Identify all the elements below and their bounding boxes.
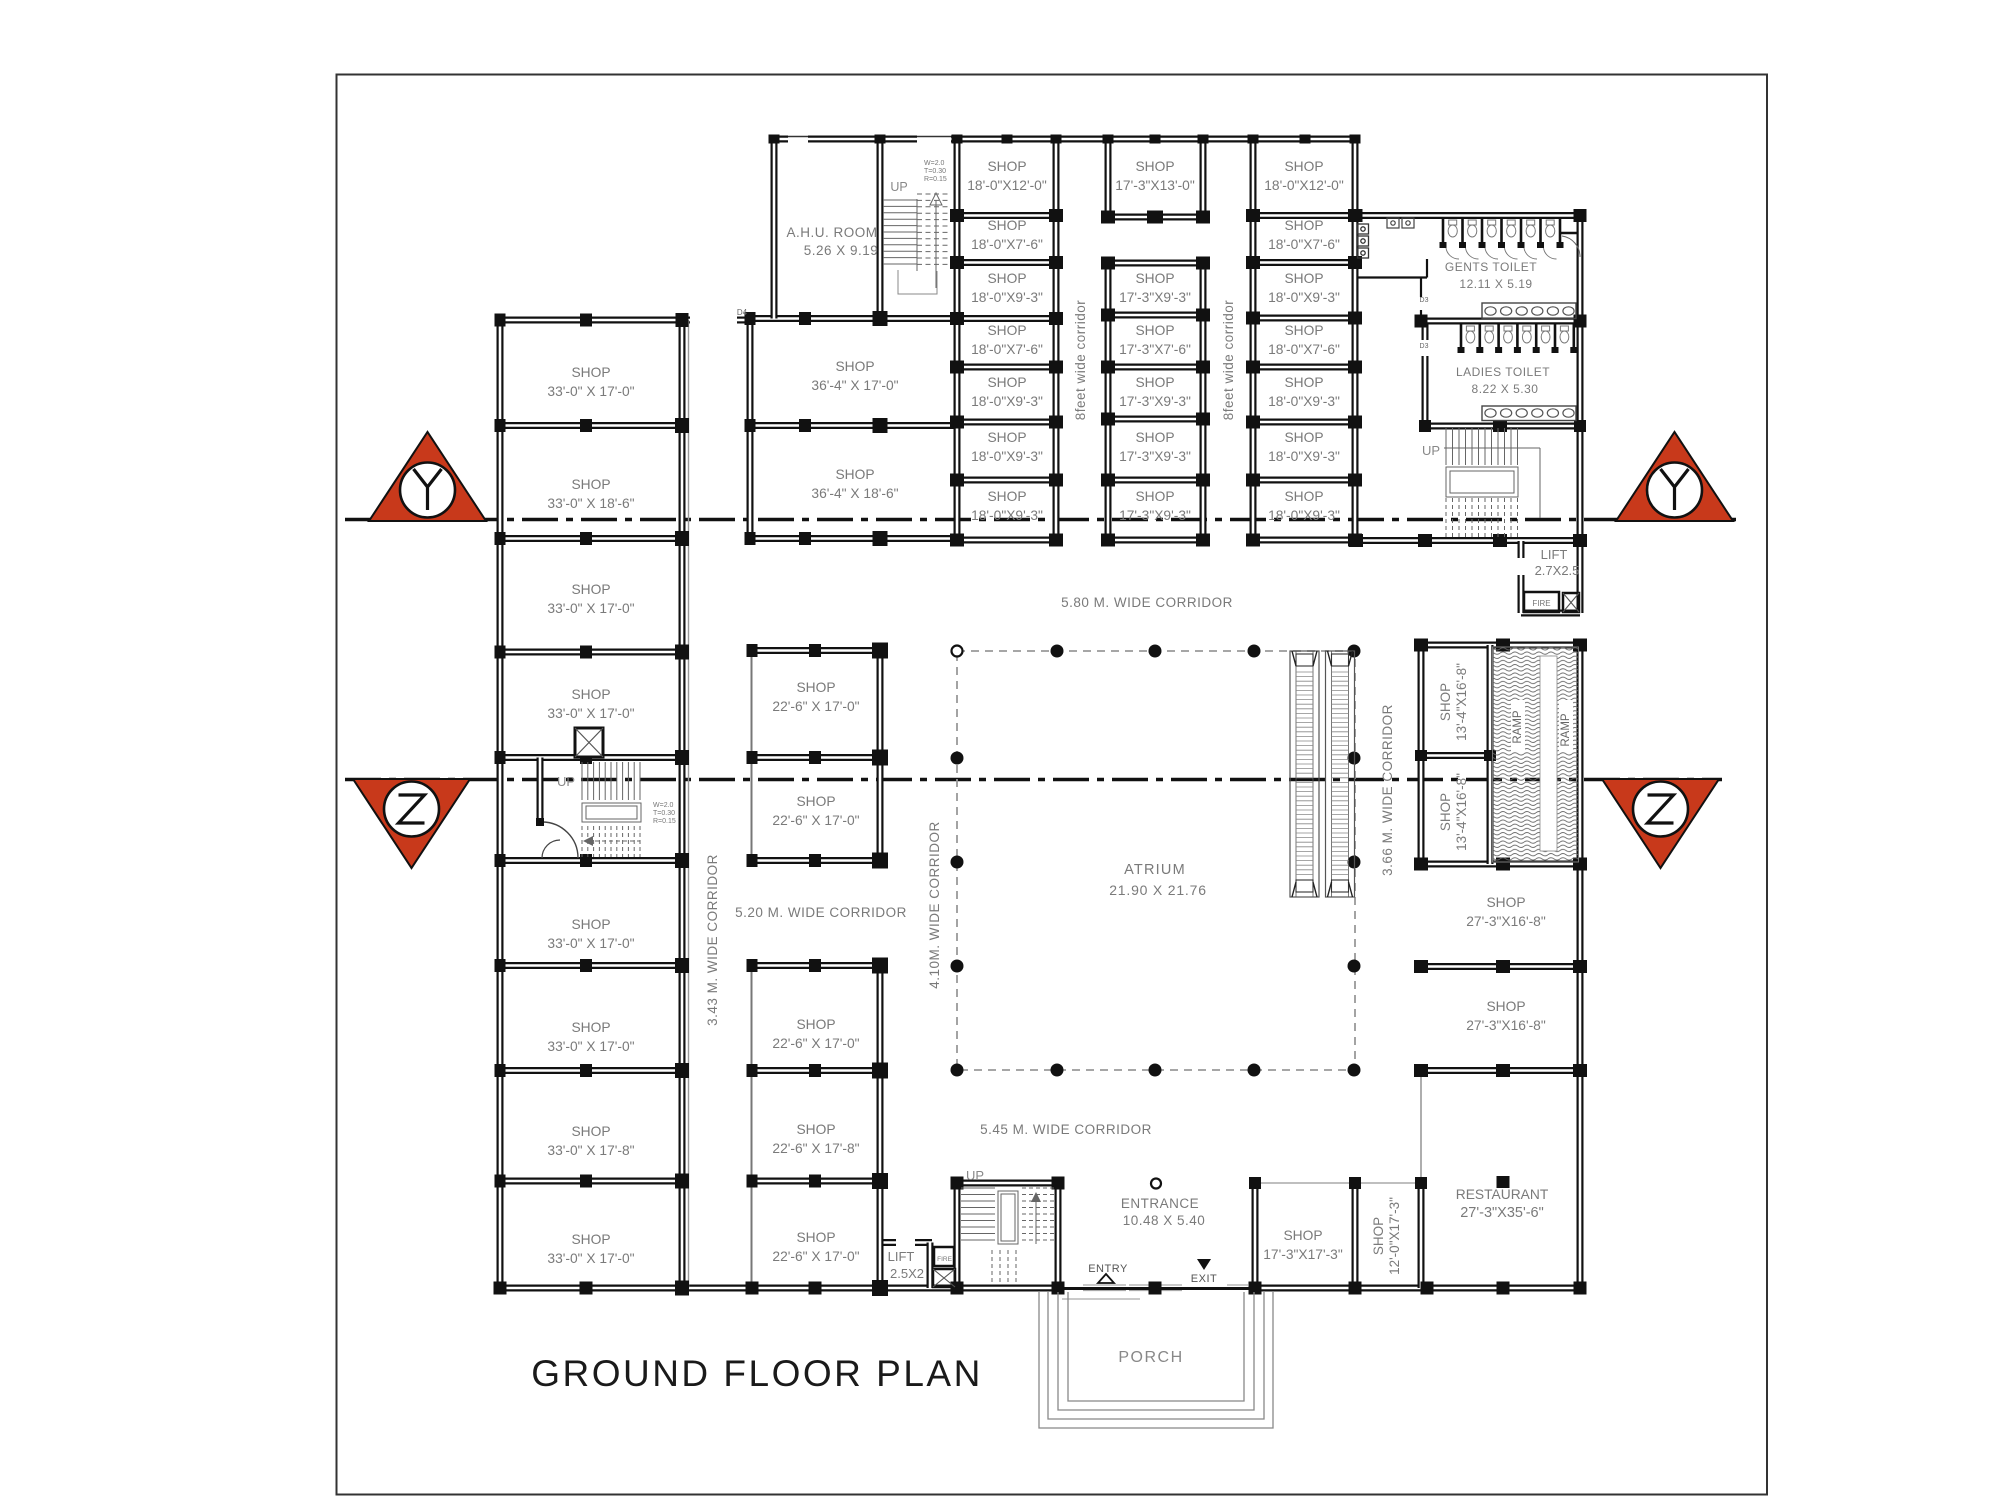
svg-text:SHOP: SHOP bbox=[571, 582, 610, 597]
svg-text:SHOP: SHOP bbox=[571, 1124, 610, 1139]
svg-text:33'-0" X 17'-0": 33'-0" X 17'-0" bbox=[547, 601, 634, 616]
svg-text:SHOP: SHOP bbox=[1283, 1228, 1322, 1243]
svg-text:UP: UP bbox=[557, 774, 575, 789]
svg-text:GROUND FLOOR PLAN: GROUND FLOOR PLAN bbox=[531, 1353, 983, 1394]
svg-text:SHOP: SHOP bbox=[987, 323, 1026, 338]
svg-text:22'-6" X 17'-0": 22'-6" X 17'-0" bbox=[772, 1249, 859, 1264]
svg-text:3.66 M. WIDE CORRIDOR: 3.66 M. WIDE CORRIDOR bbox=[1380, 704, 1395, 876]
svg-text:27'-3"X16'-8": 27'-3"X16'-8" bbox=[1466, 1018, 1546, 1033]
svg-text:RAMP: RAMP bbox=[1512, 710, 1524, 744]
svg-text:SHOP: SHOP bbox=[1371, 1217, 1386, 1255]
svg-text:SHOP: SHOP bbox=[1135, 159, 1174, 174]
svg-text:SHOP: SHOP bbox=[1438, 793, 1453, 831]
svg-text:SHOP: SHOP bbox=[1284, 323, 1323, 338]
svg-text:13'-4"X16'-8": 13'-4"X16'-8" bbox=[1454, 663, 1469, 741]
svg-text:UP: UP bbox=[966, 1168, 984, 1183]
svg-text:SHOP: SHOP bbox=[835, 467, 874, 482]
svg-text:SHOP: SHOP bbox=[987, 159, 1026, 174]
svg-text:SHOP: SHOP bbox=[1284, 489, 1323, 504]
svg-text:17'-3"X7'-6": 17'-3"X7'-6" bbox=[1119, 342, 1191, 357]
svg-text:5.26 X 9.19: 5.26 X 9.19 bbox=[804, 243, 879, 258]
svg-text:36'-4" X 18'-6": 36'-4" X 18'-6" bbox=[811, 486, 898, 501]
svg-text:8.22 X 5.30: 8.22 X 5.30 bbox=[1472, 382, 1539, 396]
svg-text:UP: UP bbox=[890, 180, 907, 194]
svg-text:33'-0" X 17'-0": 33'-0" X 17'-0" bbox=[547, 1251, 634, 1266]
svg-text:10.48 X 5.40: 10.48 X 5.40 bbox=[1123, 1213, 1206, 1228]
svg-text:4.10M. WIDE CORRIDOR: 4.10M. WIDE CORRIDOR bbox=[927, 821, 942, 989]
svg-text:18'-0"X9'-3": 18'-0"X9'-3" bbox=[1268, 449, 1340, 464]
svg-text:W=2.0: W=2.0 bbox=[924, 160, 945, 167]
svg-text:T=0.30: T=0.30 bbox=[653, 810, 675, 817]
svg-text:SHOP: SHOP bbox=[796, 794, 835, 809]
svg-text:33'-0" X 17'-0": 33'-0" X 17'-0" bbox=[547, 384, 634, 399]
svg-text:SHOP: SHOP bbox=[571, 1232, 610, 1247]
svg-text:2.5X2: 2.5X2 bbox=[890, 1266, 924, 1281]
svg-text:GENTS TOILET: GENTS TOILET bbox=[1445, 260, 1537, 274]
svg-text:22'-6" X 17'-8": 22'-6" X 17'-8" bbox=[772, 1141, 859, 1156]
svg-text:18'-0"X9'-3": 18'-0"X9'-3" bbox=[971, 394, 1043, 409]
svg-text:SHOP: SHOP bbox=[987, 271, 1026, 286]
svg-text:SHOP: SHOP bbox=[796, 1122, 835, 1137]
svg-text:W=2.0: W=2.0 bbox=[653, 802, 674, 809]
svg-text:12'-0"X17'-3": 12'-0"X17'-3" bbox=[1387, 1197, 1402, 1275]
svg-text:SHOP: SHOP bbox=[1284, 159, 1323, 174]
svg-text:SHOP: SHOP bbox=[1486, 999, 1525, 1014]
svg-text:SHOP: SHOP bbox=[796, 1230, 835, 1245]
svg-text:T=0.30: T=0.30 bbox=[924, 168, 946, 175]
svg-text:36'-4" X 17'-0": 36'-4" X 17'-0" bbox=[811, 378, 898, 393]
svg-text:SHOP: SHOP bbox=[1284, 430, 1323, 445]
svg-text:SHOP: SHOP bbox=[1135, 271, 1174, 286]
svg-text:EXIT: EXIT bbox=[1191, 1273, 1217, 1285]
svg-text:2.7X2.5: 2.7X2.5 bbox=[1535, 563, 1580, 578]
svg-text:SHOP: SHOP bbox=[571, 687, 610, 702]
svg-text:8feet wide corridor: 8feet wide corridor bbox=[1221, 300, 1236, 421]
svg-text:17'-3"X17'-3": 17'-3"X17'-3" bbox=[1263, 1247, 1343, 1262]
svg-text:18'-0"X9'-3": 18'-0"X9'-3" bbox=[971, 508, 1043, 523]
svg-text:LIFT: LIFT bbox=[1541, 547, 1568, 562]
svg-text:18'-0"X9'-3": 18'-0"X9'-3" bbox=[1268, 290, 1340, 305]
svg-text:8feet wide corridor: 8feet wide corridor bbox=[1073, 300, 1088, 421]
svg-text:13'-4"X16'-8": 13'-4"X16'-8" bbox=[1454, 773, 1469, 851]
svg-text:33'-0" X 17'-8": 33'-0" X 17'-8" bbox=[547, 1143, 634, 1158]
svg-text:SHOP: SHOP bbox=[571, 1020, 610, 1035]
svg-text:18'-0"X9'-3": 18'-0"X9'-3" bbox=[1268, 394, 1340, 409]
svg-text:17'-3"X9'-3": 17'-3"X9'-3" bbox=[1119, 449, 1191, 464]
svg-text:RESTAURANT: RESTAURANT bbox=[1456, 1187, 1549, 1202]
svg-text:22'-6" X 17'-0": 22'-6" X 17'-0" bbox=[772, 813, 859, 828]
svg-text:SHOP: SHOP bbox=[1284, 271, 1323, 286]
svg-text:SHOP: SHOP bbox=[571, 365, 610, 380]
svg-text:ATRIUM: ATRIUM bbox=[1124, 862, 1186, 878]
svg-text:SHOP: SHOP bbox=[1284, 218, 1323, 233]
svg-text:27'-3"X35'-6": 27'-3"X35'-6" bbox=[1460, 1205, 1544, 1221]
svg-text:SHOP: SHOP bbox=[987, 375, 1026, 390]
svg-text:17'-3"X9'-3": 17'-3"X9'-3" bbox=[1119, 290, 1191, 305]
svg-text:SHOP: SHOP bbox=[571, 477, 610, 492]
svg-text:27'-3"X16'-8": 27'-3"X16'-8" bbox=[1466, 914, 1546, 929]
svg-text:18'-0"X7'-6": 18'-0"X7'-6" bbox=[971, 237, 1043, 252]
svg-text:17'-3"X9'-3": 17'-3"X9'-3" bbox=[1119, 394, 1191, 409]
svg-text:12.11 X 5.19: 12.11 X 5.19 bbox=[1459, 277, 1532, 291]
svg-text:18'-0"X12'-0": 18'-0"X12'-0" bbox=[967, 178, 1047, 193]
svg-text:SHOP: SHOP bbox=[796, 680, 835, 695]
svg-text:18'-0"X7'-6": 18'-0"X7'-6" bbox=[1268, 342, 1340, 357]
svg-text:ENTRANCE: ENTRANCE bbox=[1121, 1196, 1199, 1211]
svg-text:SHOP: SHOP bbox=[1284, 375, 1323, 390]
svg-text:SHOP: SHOP bbox=[1438, 683, 1453, 721]
svg-text:5.20 M. WIDE CORRIDOR: 5.20 M. WIDE CORRIDOR bbox=[735, 905, 907, 920]
svg-text:33'-0" X 17'-0": 33'-0" X 17'-0" bbox=[547, 936, 634, 951]
svg-text:D4: D4 bbox=[737, 308, 748, 317]
svg-text:33'-0" X 18'-6": 33'-0" X 18'-6" bbox=[547, 496, 634, 511]
svg-text:R=0.15: R=0.15 bbox=[653, 818, 676, 825]
svg-text:18'-0"X9'-3": 18'-0"X9'-3" bbox=[971, 449, 1043, 464]
svg-text:SHOP: SHOP bbox=[987, 218, 1026, 233]
svg-text:SHOP: SHOP bbox=[1135, 489, 1174, 504]
svg-text:18'-0"X7'-6": 18'-0"X7'-6" bbox=[1268, 237, 1340, 252]
svg-text:33'-0" X 17'-0": 33'-0" X 17'-0" bbox=[547, 706, 634, 721]
svg-text:RAMP: RAMP bbox=[1560, 713, 1572, 747]
svg-text:17'-3"X13'-0": 17'-3"X13'-0" bbox=[1115, 178, 1195, 193]
svg-text:FIRE: FIRE bbox=[1532, 599, 1550, 608]
svg-text:A.H.U. ROOM: A.H.U. ROOM bbox=[786, 225, 877, 240]
svg-text:D3: D3 bbox=[1420, 297, 1429, 304]
svg-text:LADIES TOILET: LADIES TOILET bbox=[1456, 365, 1550, 379]
svg-text:18'-0"X9'-3": 18'-0"X9'-3" bbox=[1268, 508, 1340, 523]
svg-text:18'-0"X12'-0": 18'-0"X12'-0" bbox=[1264, 178, 1344, 193]
svg-text:SHOP: SHOP bbox=[987, 489, 1026, 504]
svg-text:SHOP: SHOP bbox=[1486, 895, 1525, 910]
svg-text:LIFT: LIFT bbox=[888, 1249, 915, 1264]
svg-text:5.45 M. WIDE CORRIDOR: 5.45 M. WIDE CORRIDOR bbox=[980, 1122, 1152, 1137]
svg-text:18'-0"X7'-6": 18'-0"X7'-6" bbox=[971, 342, 1043, 357]
svg-text:33'-0" X 17'-0": 33'-0" X 17'-0" bbox=[547, 1039, 634, 1054]
svg-text:SHOP: SHOP bbox=[835, 359, 874, 374]
svg-text:SHOP: SHOP bbox=[1135, 323, 1174, 338]
svg-text:18'-0"X9'-3": 18'-0"X9'-3" bbox=[971, 290, 1043, 305]
svg-text:R=0.15: R=0.15 bbox=[924, 176, 947, 183]
svg-text:22'-6" X 17'-0": 22'-6" X 17'-0" bbox=[772, 699, 859, 714]
svg-text:21.90 X 21.76: 21.90 X 21.76 bbox=[1109, 882, 1207, 898]
svg-text:UP: UP bbox=[1422, 443, 1440, 458]
svg-text:D3: D3 bbox=[1420, 343, 1429, 350]
svg-text:22'-6" X 17'-0": 22'-6" X 17'-0" bbox=[772, 1036, 859, 1051]
svg-text:FIRE: FIRE bbox=[937, 1256, 952, 1263]
svg-text:SHOP: SHOP bbox=[1135, 430, 1174, 445]
svg-text:3.43 M. WIDE CORRIDOR: 3.43 M. WIDE CORRIDOR bbox=[705, 854, 720, 1026]
svg-text:SHOP: SHOP bbox=[796, 1017, 835, 1032]
svg-text:17'-3"X9'-3": 17'-3"X9'-3" bbox=[1119, 508, 1191, 523]
svg-text:PORCH: PORCH bbox=[1118, 1349, 1183, 1366]
svg-text:SHOP: SHOP bbox=[571, 917, 610, 932]
svg-text:5.80 M. WIDE CORRIDOR: 5.80 M. WIDE CORRIDOR bbox=[1061, 595, 1233, 610]
svg-text:ENTRY: ENTRY bbox=[1088, 1263, 1128, 1275]
svg-text:SHOP: SHOP bbox=[987, 430, 1026, 445]
svg-text:SHOP: SHOP bbox=[1135, 375, 1174, 390]
